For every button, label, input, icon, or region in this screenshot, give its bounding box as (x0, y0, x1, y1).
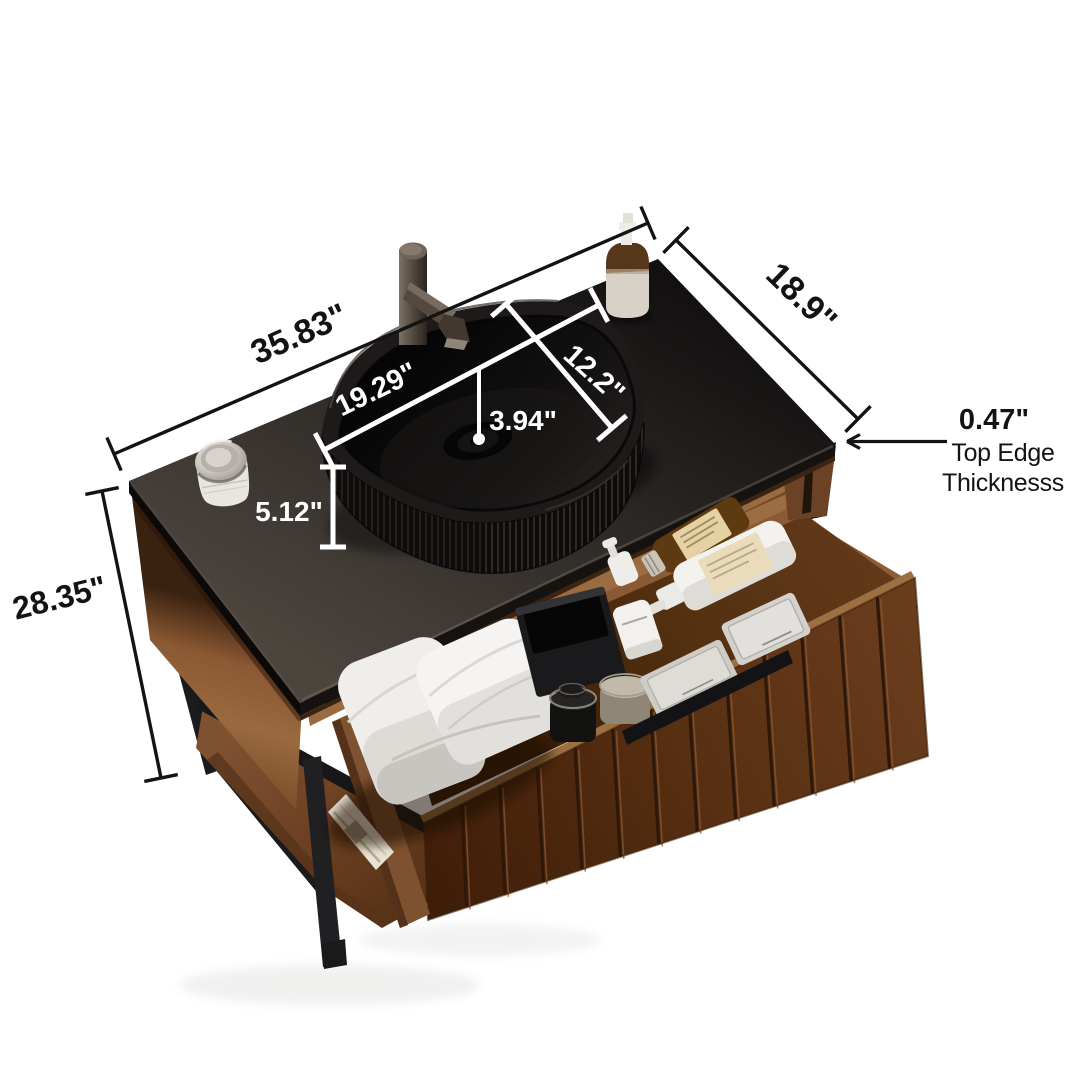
svg-text:Thicknesss: Thicknesss (942, 469, 1064, 497)
svg-text:3.94": 3.94" (489, 405, 557, 436)
svg-text:5.12": 5.12" (255, 496, 323, 527)
svg-text:Top Edge: Top Edge (951, 439, 1054, 467)
svg-text:0.47": 0.47" (959, 404, 1029, 436)
